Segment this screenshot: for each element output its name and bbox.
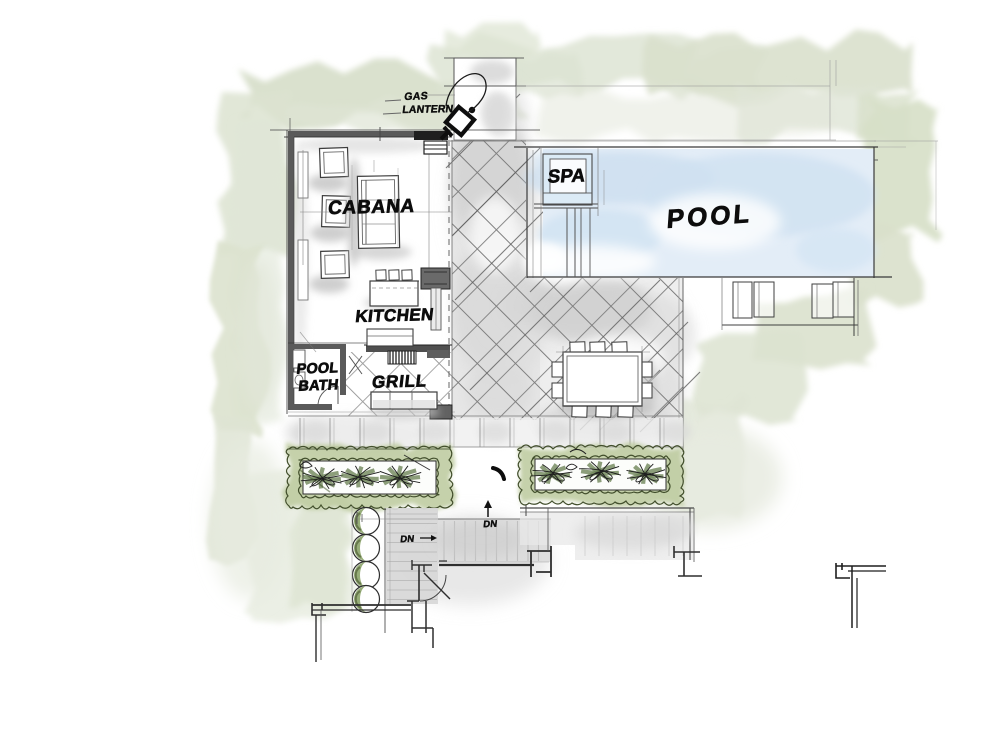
svg-text:GAS: GAS: [404, 90, 429, 103]
svg-text:POOL: POOL: [296, 360, 340, 377]
svg-text:KITCHEN: KITCHEN: [354, 305, 434, 326]
svg-text:CABANA: CABANA: [327, 196, 416, 219]
svg-text:DN: DN: [483, 519, 498, 530]
svg-text:DN: DN: [400, 534, 415, 545]
svg-text:GRILL: GRILL: [371, 371, 428, 391]
svg-text:POOL: POOL: [666, 198, 754, 234]
svg-text:BATH: BATH: [298, 377, 340, 394]
svg-text:SPA: SPA: [547, 164, 587, 186]
svg-text:LANTERN: LANTERN: [402, 103, 454, 116]
